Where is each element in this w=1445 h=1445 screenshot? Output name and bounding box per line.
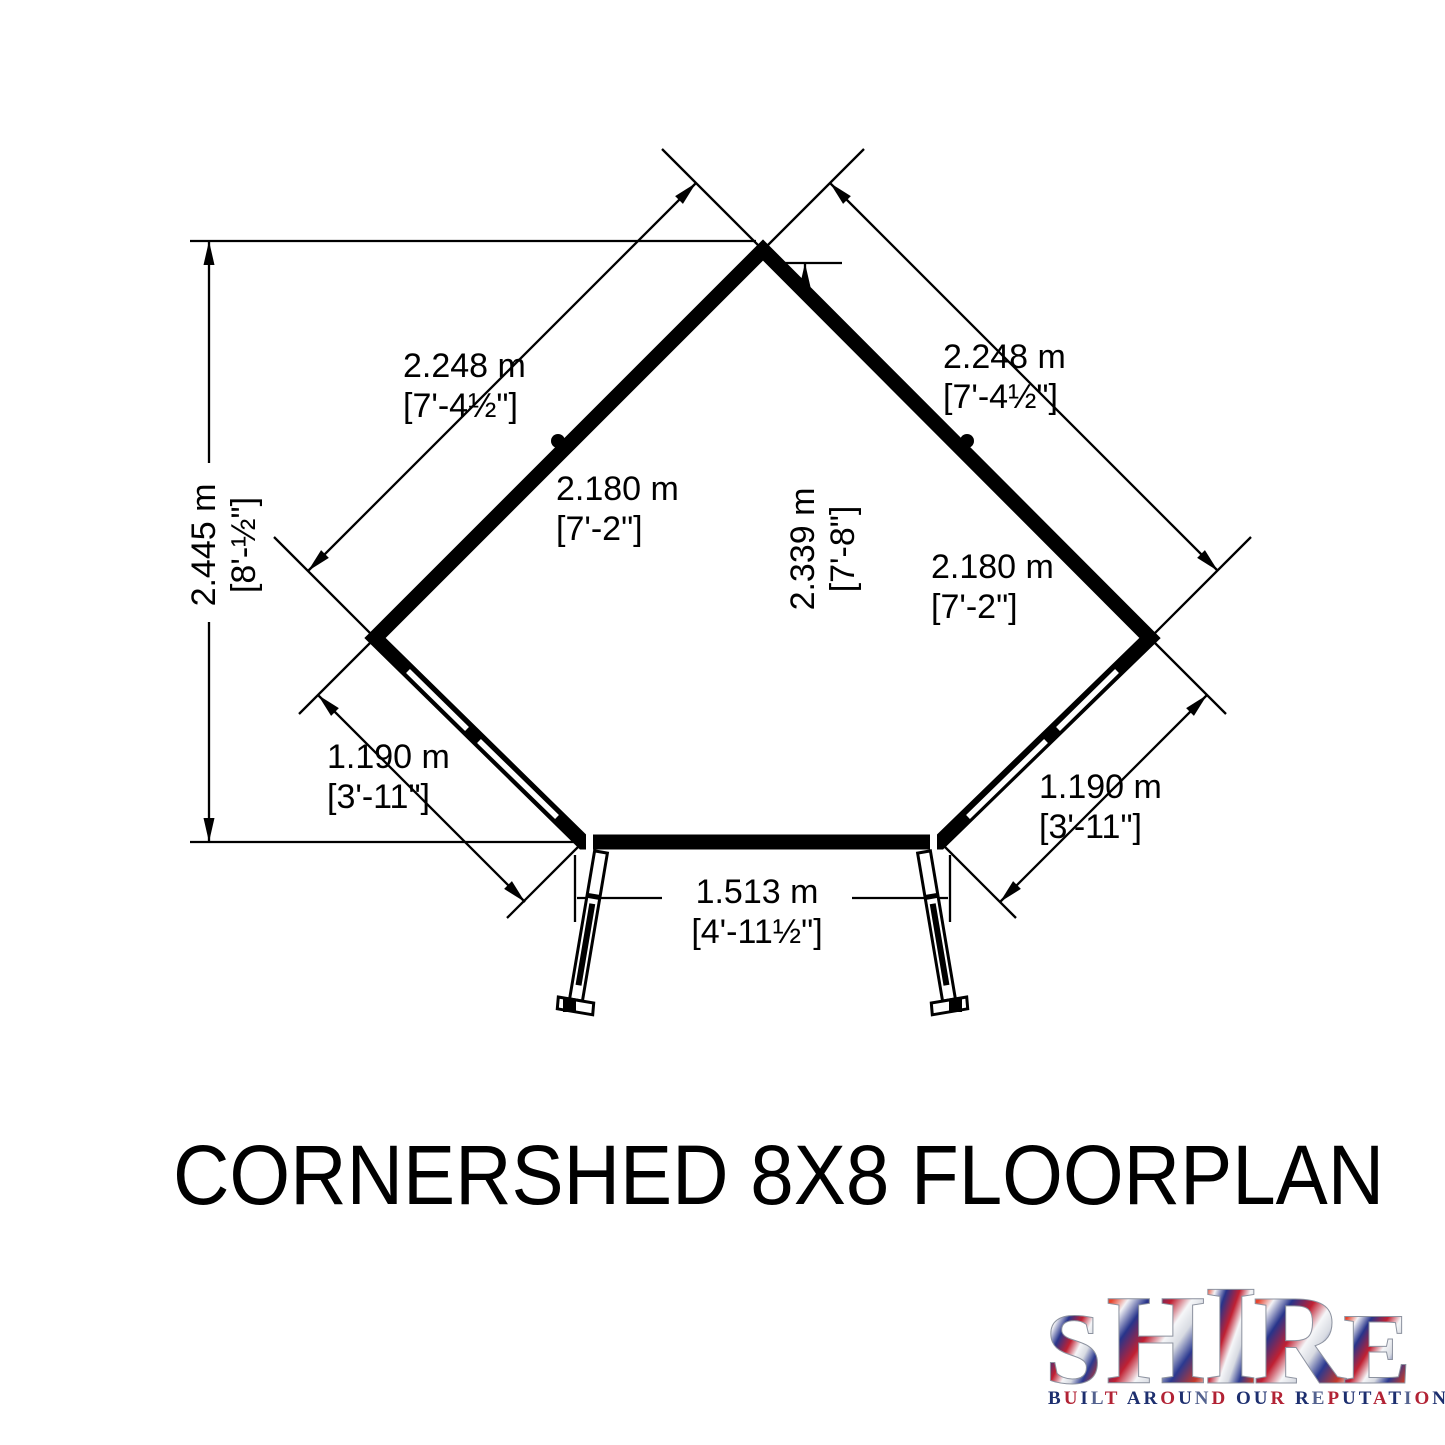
tagline-char: O — [1236, 1388, 1254, 1409]
door-left-end-block — [563, 999, 576, 1012]
dim-label-internal-width-right: 2.180 m [7'-2"] — [931, 547, 1054, 627]
ext-corner-left — [274, 537, 375, 638]
floorplan-page: 2.248 m [7'-4½"] 2.248 m [7'-4½"] 2.445 … — [0, 0, 1445, 1445]
tagline-char: U — [1342, 1388, 1359, 1409]
tagline-char: A — [1127, 1388, 1144, 1409]
logo-tagline: BUILT AROUND OUR REPUTATION — [1048, 1388, 1423, 1410]
tagline-char: D — [1212, 1388, 1229, 1409]
wall-joint-upper-left — [551, 434, 565, 448]
door-jamb-gap-left — [586, 833, 593, 851]
tagline-char: N — [1432, 1388, 1445, 1409]
ext-apex-right — [763, 149, 864, 250]
floorplan-drawing — [0, 0, 1445, 1445]
dim-imperial: [7'-2"] — [931, 587, 1054, 627]
tagline-char: O — [1160, 1388, 1178, 1409]
ext-lower-left-a — [299, 638, 375, 714]
tagline-char: U — [1064, 1388, 1081, 1409]
tagline-char: O — [1414, 1388, 1432, 1409]
dim-metric: 1.513 m — [691, 872, 822, 912]
tagline-char: R — [1295, 1388, 1312, 1409]
dim-imperial: [7'-2"] — [556, 509, 679, 549]
dim-imperial: [7'-4½"] — [943, 377, 1066, 417]
dim-label-internal-height-centre: 2.339 m [7'-8"] — [783, 488, 863, 611]
page-title: CORNERSHED 8X8 FLOORPLAN — [173, 1127, 1384, 1224]
ext-apex-left — [662, 149, 763, 250]
tagline-char: U — [1254, 1388, 1271, 1409]
dim-metric: 2.339 m — [783, 488, 823, 611]
tagline-char: T — [1359, 1388, 1373, 1409]
ext-lower-right-b — [940, 842, 1016, 918]
dim-metric: 1.190 m — [327, 737, 450, 777]
door-left-tick — [587, 895, 600, 897]
tagline-char — [1120, 1388, 1127, 1409]
dim-imperial: [4'-11½"] — [691, 912, 822, 952]
dim-imperial: [7'-8"] — [823, 488, 863, 611]
dim-imperial: [8'-½"] — [224, 484, 264, 607]
door-right — [918, 851, 968, 1015]
ext-lower-left-b — [507, 842, 583, 918]
door-left — [557, 851, 607, 1015]
tagline-char: U — [1178, 1388, 1195, 1409]
dim-metric: 1.190 m — [1039, 767, 1162, 807]
dim-label-overall-height-left: 2.445 m [8'-½"] — [184, 484, 264, 607]
tagline-char: I — [1080, 1388, 1090, 1409]
dim-label-door-opening: 1.513 m [4'-11½"] — [691, 872, 822, 952]
dim-metric: 2.248 m — [943, 337, 1066, 377]
tagline-char: A — [1373, 1388, 1388, 1409]
dim-imperial: [7'-4½"] — [403, 386, 526, 426]
tagline-char — [1287, 1388, 1295, 1409]
tagline-char: B — [1048, 1388, 1064, 1409]
tagline-char: R — [1144, 1388, 1161, 1409]
tagline-char: T — [1388, 1388, 1404, 1409]
tagline-char — [1228, 1388, 1236, 1409]
door-right-end-block — [949, 999, 962, 1012]
ext-lower-right-a — [1150, 638, 1226, 714]
dim-label-wall-lower-right: 1.190 m [3'-11"] — [1039, 767, 1162, 847]
dim-metric: 2.180 m — [931, 547, 1054, 587]
dim-label-internal-width-left: 2.180 m [7'-2"] — [556, 469, 679, 549]
dim-metric: 2.248 m — [403, 346, 526, 386]
tagline-char: P — [1327, 1388, 1342, 1409]
dim-metric: 2.445 m — [184, 484, 224, 607]
tagline-char: R — [1271, 1388, 1288, 1409]
dim-metric: 2.180 m — [556, 469, 679, 509]
dim-label-wall-lower-left: 1.190 m [3'-11"] — [327, 737, 450, 817]
dim-imperial: [3'-11"] — [327, 777, 450, 817]
tagline-char: I — [1404, 1388, 1414, 1409]
dim-label-wall-upper-right: 2.248 m [7'-4½"] — [943, 337, 1066, 417]
tagline-char: L — [1091, 1388, 1105, 1409]
wall-joint-upper-right — [960, 434, 974, 448]
tagline-char: N — [1195, 1388, 1212, 1409]
dim-label-wall-upper-left: 2.248 m [7'-4½"] — [403, 346, 526, 426]
tagline-char: E — [1312, 1388, 1328, 1409]
dim-imperial: [3'-11"] — [1039, 807, 1162, 847]
door-right-tick — [925, 895, 938, 897]
tagline-char: T — [1105, 1388, 1120, 1409]
door-jamb-gap-right — [930, 833, 937, 851]
